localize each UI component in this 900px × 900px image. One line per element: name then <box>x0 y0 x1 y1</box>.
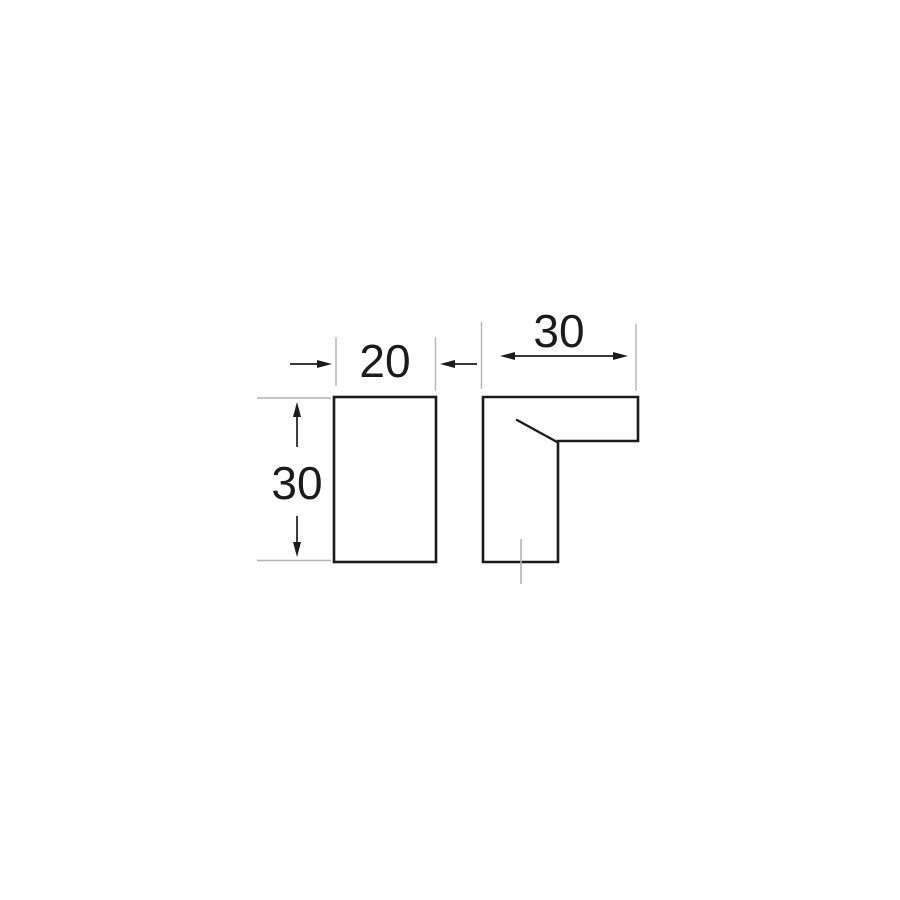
arrowhead-right <box>613 352 628 360</box>
technical-drawing: 20 30 30 <box>0 0 900 900</box>
front-view-outline <box>334 397 436 562</box>
dim-front-width-label: 20 <box>359 335 410 387</box>
arrowhead-left <box>500 352 515 360</box>
dim-side-depth-label: 30 <box>533 305 584 357</box>
arrowhead-left <box>440 360 455 368</box>
arrowhead-down <box>293 542 301 557</box>
arrowhead-up <box>293 402 301 417</box>
front-view: 20 30 <box>257 335 477 562</box>
dim-front-height-label: 30 <box>271 457 322 509</box>
side-view: 30 <box>482 305 639 584</box>
drawing-canvas: 20 30 30 <box>0 0 900 900</box>
side-view-outline <box>483 397 638 562</box>
arrowhead-right <box>317 360 332 368</box>
